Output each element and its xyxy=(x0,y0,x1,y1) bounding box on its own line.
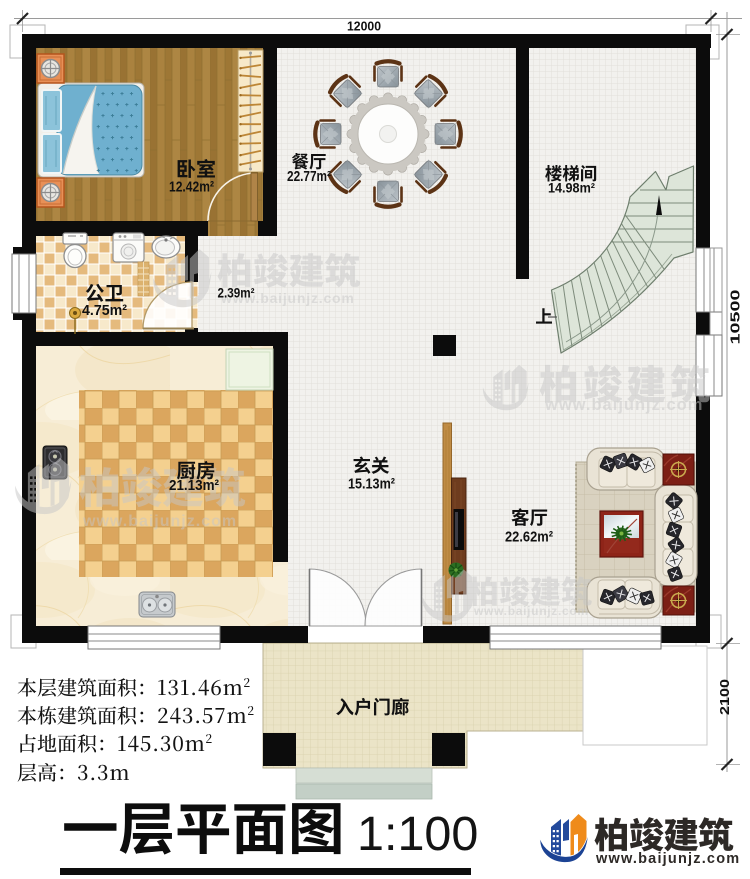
svg-text:12000: 12000 xyxy=(347,19,381,34)
svg-text:www.baijunjz.com: www.baijunjz.com xyxy=(82,513,237,530)
svg-text:21.13m²: 21.13m² xyxy=(169,477,219,494)
svg-text:15.13m²: 15.13m² xyxy=(348,476,395,493)
svg-text:1:100: 1:100 xyxy=(357,807,478,861)
svg-text:2100: 2100 xyxy=(718,679,732,715)
svg-text:www.baijunjz.com: www.baijunjz.com xyxy=(473,604,589,618)
svg-text:22.77m²: 22.77m² xyxy=(287,169,331,185)
svg-text:10500: 10500 xyxy=(728,290,743,345)
svg-text:12.42m²: 12.42m² xyxy=(169,179,214,196)
svg-text:2.39m²: 2.39m² xyxy=(218,285,255,301)
svg-text:www.baijunjz.com: www.baijunjz.com xyxy=(595,851,740,867)
svg-text:www.baijunjz.com: www.baijunjz.com xyxy=(544,396,703,414)
svg-text:4.75m²: 4.75m² xyxy=(82,302,127,319)
svg-text:14.98m²: 14.98m² xyxy=(548,180,595,196)
svg-text:22.62m²: 22.62m² xyxy=(505,529,553,546)
